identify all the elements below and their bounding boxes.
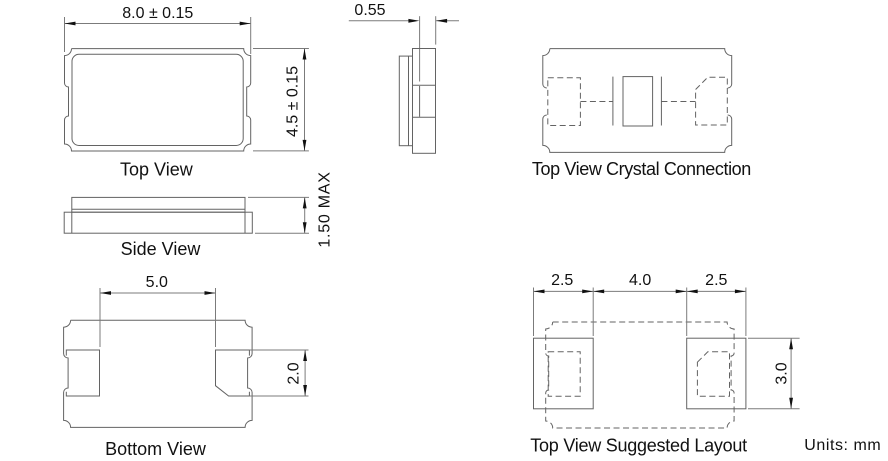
svg-text:Top View Suggested Layout: Top View Suggested Layout [530,436,747,456]
svg-text:Top View Crystal Connection: Top View Crystal Connection [532,159,751,179]
svg-text:0.55: 0.55 [354,2,385,19]
svg-text:Bottom View: Bottom View [105,439,207,459]
svg-text:2.0: 2.0 [286,362,303,384]
svg-text:5.0: 5.0 [146,274,168,291]
svg-text:4.5 ± 0.15: 4.5 ± 0.15 [284,66,301,137]
svg-text:Top View: Top View [120,159,194,179]
svg-text:8.0 ± 0.15: 8.0 ± 0.15 [122,5,193,22]
svg-text:4.0: 4.0 [629,272,651,289]
svg-text:Units: mm: Units: mm [804,437,881,454]
svg-text:2.5: 2.5 [551,272,573,289]
svg-text:Side View: Side View [121,239,202,259]
svg-text:2.5: 2.5 [705,272,727,289]
svg-text:1.50 MAX: 1.50 MAX [317,171,334,247]
svg-text:3.0: 3.0 [774,362,791,384]
